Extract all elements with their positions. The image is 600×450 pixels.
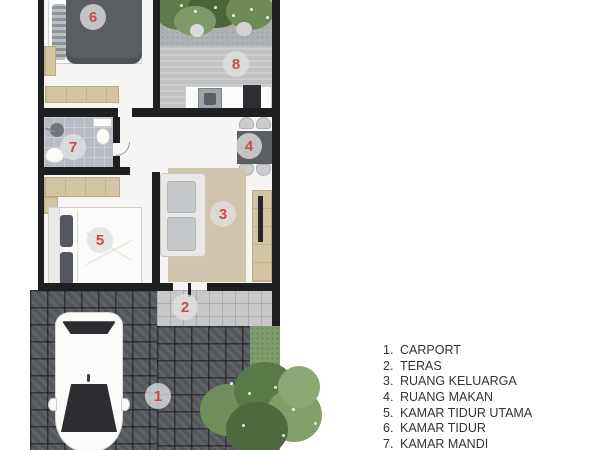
wall-h-bedroom (38, 108, 118, 117)
room-marker-5: 5 (87, 227, 113, 253)
wall-h-service (132, 108, 280, 117)
legend-label: KAMAR TIDUR (400, 421, 486, 435)
legend-item-ruang-makan: 4. RUANG MAKAN (383, 389, 532, 405)
car (55, 312, 123, 450)
room-marker-6-number: 6 (89, 9, 97, 26)
flower-dot (180, 4, 183, 7)
bedroom-dresser (45, 86, 119, 103)
washer-drum (204, 93, 216, 105)
room-marker-2-number: 2 (181, 299, 189, 316)
legend-number: 6. (383, 421, 400, 435)
wall-left (38, 0, 44, 290)
wall-right (272, 0, 280, 326)
bed-master-pillow (60, 215, 73, 247)
room-marker-1-number: 1 (154, 388, 162, 405)
garden-rock (236, 22, 252, 36)
tree-foliage (226, 402, 288, 450)
car-rear-window (62, 319, 116, 334)
legend-item-teras: 2. TERAS (383, 358, 532, 374)
legend-item-kamar-tidur: 6. KAMAR TIDUR (383, 420, 532, 436)
room-marker-6: 6 (80, 4, 106, 30)
car-antenna (87, 374, 90, 382)
legend-item-kamar-mandi: 7. KAMAR MANDI (383, 436, 532, 450)
tree (200, 362, 325, 450)
car-mirror (48, 398, 57, 411)
floor-plan: 1 2 3 4 5 6 7 8 (0, 0, 335, 450)
tv (258, 196, 263, 242)
legend-number: 2. (383, 359, 400, 373)
wardrobe (44, 177, 120, 197)
legend-label: RUANG MAKAN (400, 390, 493, 404)
room-marker-2: 2 (172, 294, 198, 320)
room-marker-5-number: 5 (96, 232, 104, 249)
room-marker-1: 1 (145, 383, 171, 409)
wall-h-bath-bottom (38, 167, 130, 175)
dark-appliance (243, 85, 261, 110)
legend-number: 7. (383, 437, 400, 450)
floorplan-screenshot: 1 2 3 4 5 6 7 8 1. CARPORT 2. TERAS 3. R… (0, 0, 600, 450)
washing-machine (198, 88, 222, 109)
legend-number: 5. (383, 406, 400, 420)
tree-foliage (278, 366, 320, 408)
legend-item-ruang-keluarga: 3. RUANG KELUARGA (383, 373, 532, 389)
sofa (160, 173, 206, 257)
bed-master-headboard (49, 208, 60, 291)
room-marker-7-number: 7 (69, 139, 77, 156)
room-marker-8: 8 (223, 51, 249, 77)
legend-number: 4. (383, 390, 400, 404)
garden-rock (190, 24, 204, 37)
dining-chair (256, 117, 271, 129)
room-marker-3-number: 3 (219, 206, 227, 223)
legend-label: KAMAR TIDUR UTAMA (400, 406, 532, 420)
legend-label: TERAS (400, 359, 442, 373)
room-marker-4: 4 (236, 133, 262, 159)
car-mirror (121, 398, 130, 411)
blanket-edge (77, 210, 78, 290)
sofa-cushion (167, 181, 196, 213)
bed-master-pillow (60, 252, 73, 285)
wall-family-left (152, 172, 160, 283)
room-marker-7: 7 (60, 134, 86, 160)
room-marker-8-number: 8 (232, 56, 240, 73)
room-marker-4-number: 4 (245, 138, 253, 155)
room-marker-3: 3 (210, 201, 236, 227)
legend-number: 1. (383, 343, 400, 357)
tree-highlight (230, 382, 233, 385)
legend-number: 3. (383, 374, 400, 388)
wall-bottom-right (207, 283, 280, 291)
wall-mid-top (153, 0, 160, 113)
legend-label: RUANG KELUARGA (400, 374, 517, 388)
bedroom-desk (44, 46, 56, 76)
garden-gravel (160, 0, 272, 46)
dining-chair (239, 117, 254, 129)
sofa-cushion (167, 217, 196, 251)
wall-bath-right-stub (113, 156, 120, 167)
toilet-bowl (96, 128, 110, 145)
legend: 1. CARPORT 2. TERAS 3. RUANG KELUARGA 4.… (383, 342, 532, 450)
legend-item-carport: 1. CARPORT (383, 342, 532, 358)
toilet-tank (93, 118, 112, 127)
legend-label: CARPORT (400, 343, 461, 357)
wall-bath-right (113, 117, 120, 143)
legend-label: KAMAR MANDI (400, 437, 488, 450)
wall-bottom-left (38, 283, 173, 291)
legend-item-kamar-tidur-utama: 5. KAMAR TIDUR UTAMA (383, 405, 532, 421)
